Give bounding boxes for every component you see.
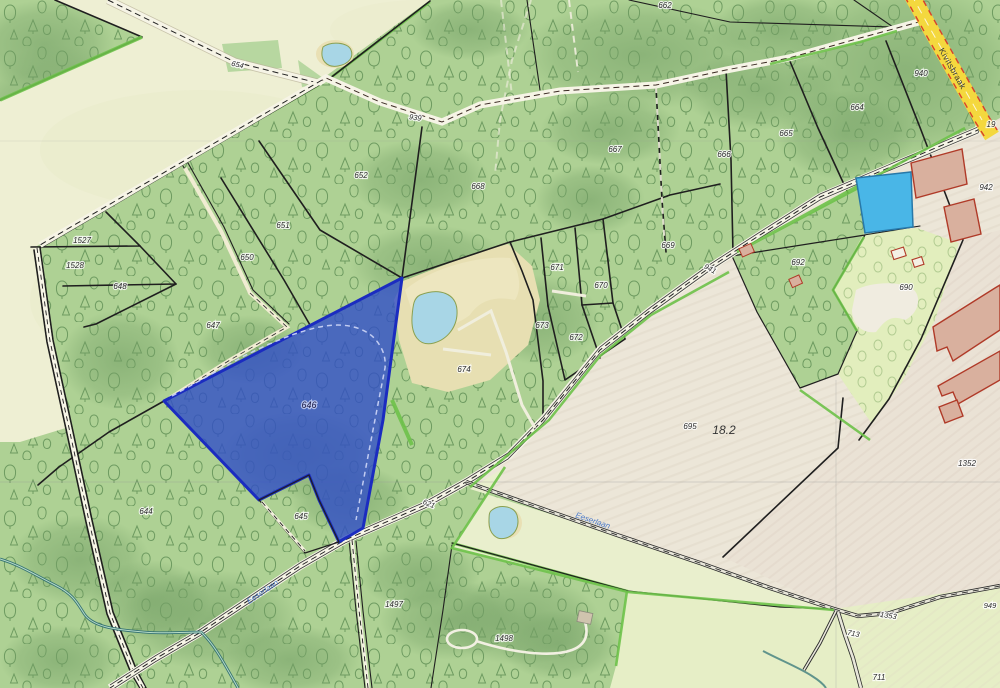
svg-text:1352: 1352: [958, 459, 976, 468]
svg-text:668: 668: [471, 182, 485, 191]
svg-text:670: 670: [594, 281, 608, 290]
svg-text:666: 666: [717, 150, 731, 159]
svg-text:18.2: 18.2: [712, 423, 736, 437]
svg-text:647: 647: [206, 321, 220, 330]
svg-text:690: 690: [899, 283, 913, 292]
svg-text:664: 664: [850, 103, 864, 112]
svg-text:1498: 1498: [495, 634, 513, 643]
svg-text:942: 942: [979, 183, 993, 192]
svg-text:19: 19: [987, 120, 996, 129]
svg-text:669: 669: [661, 241, 675, 250]
svg-text:665: 665: [779, 129, 793, 138]
svg-text:648: 648: [113, 282, 127, 291]
svg-text:645: 645: [294, 512, 308, 521]
svg-text:1497: 1497: [385, 600, 403, 609]
svg-text:650: 650: [240, 253, 254, 262]
svg-text:939: 939: [409, 112, 423, 123]
svg-text:695: 695: [683, 422, 697, 431]
svg-text:673: 673: [535, 321, 549, 330]
svg-text:652: 652: [354, 171, 368, 180]
svg-text:674: 674: [457, 365, 471, 374]
svg-text:940: 940: [914, 69, 928, 78]
svg-text:671: 671: [550, 263, 563, 272]
svg-text:646: 646: [301, 400, 316, 410]
svg-text:1527: 1527: [73, 236, 91, 245]
svg-text:672: 672: [569, 333, 583, 342]
svg-text:667: 667: [608, 145, 622, 154]
svg-text:1528: 1528: [66, 261, 84, 270]
svg-text:651: 651: [276, 221, 289, 230]
svg-text:644: 644: [139, 507, 153, 516]
svg-text:662: 662: [658, 1, 672, 10]
svg-text:711: 711: [873, 673, 886, 682]
svg-text:949: 949: [984, 601, 997, 610]
svg-text:692: 692: [791, 258, 805, 267]
